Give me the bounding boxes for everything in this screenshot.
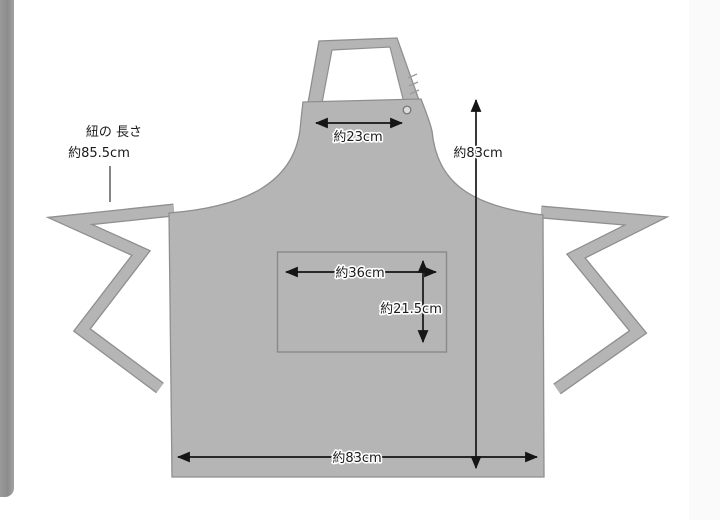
pocket-height-label: 約21.5cm: [380, 302, 442, 317]
bottom-width-label: 約83cm: [332, 451, 381, 466]
left-waist-tie-ribbon: [70, 210, 174, 388]
neck-width-label: 約23cm: [333, 130, 382, 145]
left-waist-tie: [70, 210, 174, 388]
body-height-label: 約83cm: [453, 146, 502, 161]
right-waist-tie-ribbon: [541, 212, 646, 389]
pocket-width-label: 約36cm: [335, 266, 384, 281]
neck-strap-loop: [308, 38, 420, 103]
bib-grommet: [403, 106, 411, 114]
tie-length-title-label: 紐の 長さ: [86, 125, 142, 140]
neck-strap-hole: [322, 47, 404, 103]
right-waist-tie: [541, 212, 646, 389]
tie-length-value-label: 約85.5cm: [68, 146, 130, 161]
screenshot-root: 紐の 長さ 約85.5cm 約23cm 約83cm 約36cm 約21.5cm …: [0, 0, 720, 520]
apron-dimension-diagram: 紐の 長さ 約85.5cm 約23cm 約83cm 約36cm 約21.5cm …: [0, 0, 720, 520]
